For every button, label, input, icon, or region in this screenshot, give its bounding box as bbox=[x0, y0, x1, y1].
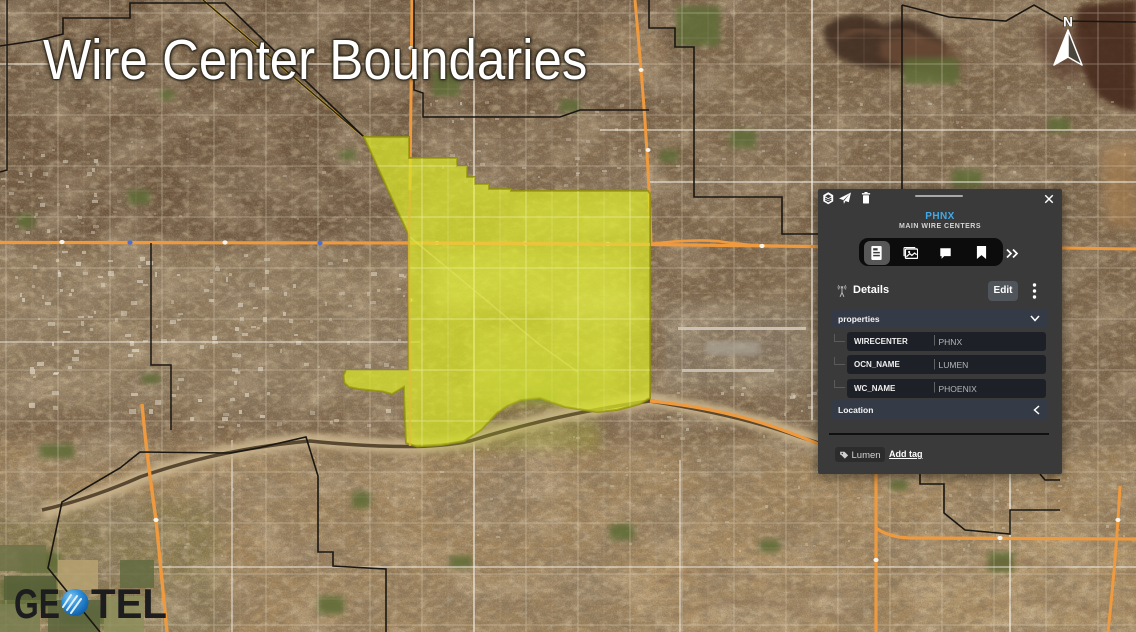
svg-text:TEL: TEL bbox=[91, 584, 167, 624]
svg-text:N: N bbox=[1063, 15, 1073, 30]
svg-text:GE: GE bbox=[14, 584, 60, 624]
